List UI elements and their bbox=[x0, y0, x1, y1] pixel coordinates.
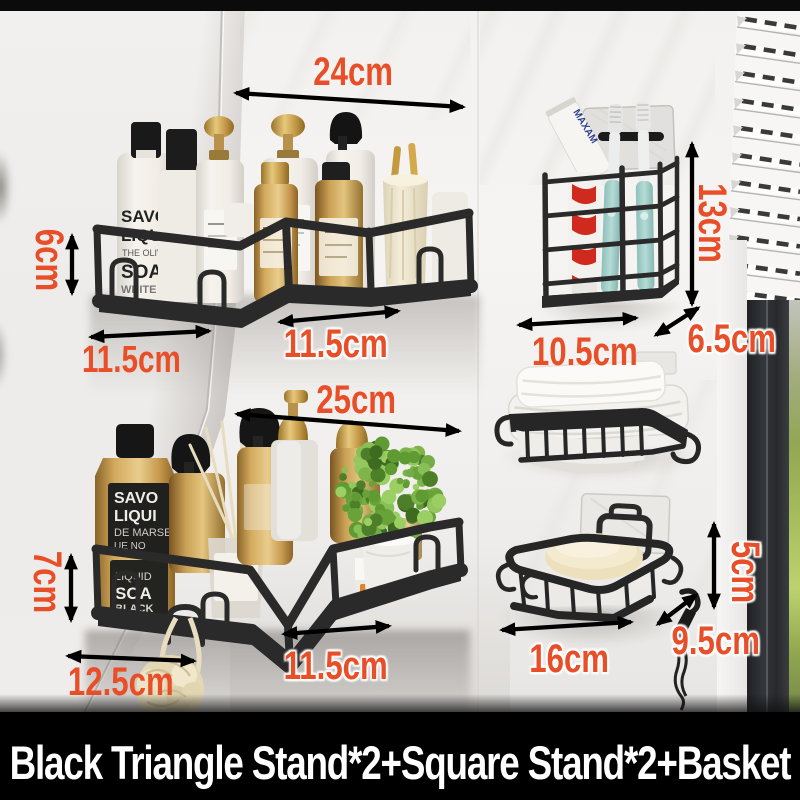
svg-text:DE MARSE: DE MARSE bbox=[114, 527, 171, 539]
svg-text:LIQUI: LIQUI bbox=[114, 508, 157, 525]
svg-text:SOA: SOA bbox=[121, 262, 162, 283]
svg-text:SOA: SOA bbox=[115, 584, 152, 603]
svg-text:SAVO: SAVO bbox=[114, 490, 158, 507]
svg-text:WHITE: WHITE bbox=[121, 284, 156, 296]
